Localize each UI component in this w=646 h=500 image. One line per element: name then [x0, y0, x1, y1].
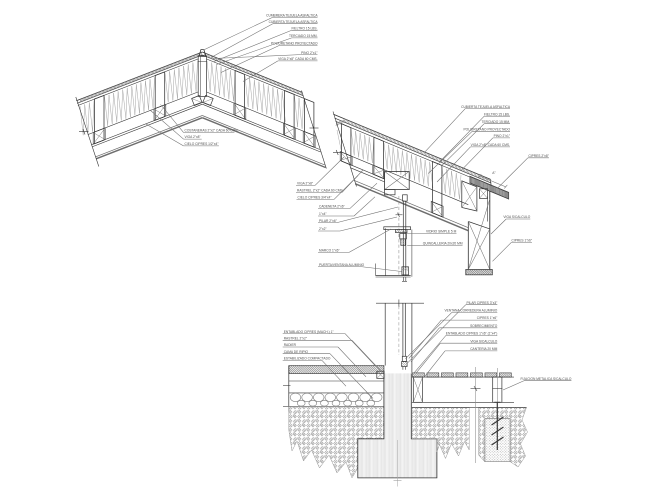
svg-text:PILAR 2"x6": PILAR 2"x6" [319, 219, 338, 223]
svg-text:VIGA S/CALCULO: VIGA S/CALCULO [503, 215, 530, 219]
svg-text:FIJACION METALICA S/CALCULO: FIJACION METALICA S/CALCULO [521, 377, 572, 381]
svg-text:CUBIERTA TEJUELA ASFALTICA: CUBIERTA TEJUELA ASFALTICA [269, 20, 319, 24]
svg-text:COSTANERAS 2"x2" CADA 60 CMS.: COSTANERAS 2"x2" CADA 60 CMS. [185, 129, 239, 133]
svg-text:VIGA 2"x8" CADA 60 CMS.: VIGA 2"x8" CADA 60 CMS. [278, 57, 317, 61]
svg-text:PILAR CIPRES 3"x3": PILAR CIPRES 3"x3" [466, 301, 498, 305]
svg-text:VIGA 2"x8": VIGA 2"x8" [185, 135, 202, 139]
svg-text:VIDRIO SIMPLE 5 M: VIDRIO SIMPLE 5 M [426, 230, 457, 234]
svg-text:POLIURETANO PROYECTADO: POLIURETANO PROYECTADO [271, 41, 318, 45]
svg-text:VIGA 2"x8" CADA 60 CMS.: VIGA 2"x8" CADA 60 CMS. [471, 143, 510, 147]
svg-text:POLIURETANO PROYECTADO: POLIURETANO PROYECTADO [464, 128, 511, 132]
svg-text:SOBRECIMIENTO: SOBRECIMIENTO [470, 324, 498, 328]
svg-text:PUERTA/VENTANA ALUMINIO: PUERTA/VENTANA ALUMINIO [319, 263, 365, 267]
svg-text:VENTANA CORREDERA ALUMINIO: VENTANA CORREDERA ALUMINIO [444, 309, 497, 313]
svg-text:QUINCALLERIA 20x20 MM: QUINCALLERIA 20x20 MM [423, 242, 463, 246]
svg-text:CIELO CIPRES 3/4"x4": CIELO CIPRES 3/4"x4" [298, 196, 333, 200]
svg-text:CIELO CIPRES 1/2"x4": CIELO CIPRES 1/2"x4" [185, 142, 220, 146]
svg-text:CUMBRERA TEJUELA ASFALTICA: CUMBRERA TEJUELA ASFALTICA [266, 13, 318, 17]
svg-text:PINO 2"x1": PINO 2"x1" [301, 51, 318, 55]
svg-text:FIELTRO 15 LBS.: FIELTRO 15 LBS. [292, 26, 318, 30]
svg-text:CIPRES 1"x6": CIPRES 1"x6" [511, 239, 532, 243]
svg-text:CUBIERTA TEJUELA ASFALTICA: CUBIERTA TEJUELA ASFALTICA [461, 105, 511, 109]
svg-text:ENTABLADO CIPRES (MACH.) 1": ENTABLADO CIPRES (MACH.) 1" [284, 330, 335, 334]
svg-text:RASTREL 2"x2": RASTREL 2"x2" [284, 336, 308, 340]
svg-text:ESTABILIZADO COMPACTADO: ESTABILIZADO COMPACTADO [284, 357, 331, 361]
svg-text:CIPRES 2"x8": CIPRES 2"x8" [528, 154, 549, 158]
svg-text:TERCIADO 15 MM.: TERCIADO 15 MM. [481, 120, 510, 124]
svg-text:2"x2": 2"x2" [319, 227, 327, 231]
svg-text:CIPRES 1"x6": CIPRES 1"x6" [477, 316, 498, 320]
svg-text:MARCO 1"x6": MARCO 1"x6" [319, 249, 340, 253]
svg-text:FIELTRO 15 LBS.: FIELTRO 15 LBS. [484, 112, 510, 116]
svg-text:RASTREL 2"x2" CADA 60 CMS.: RASTREL 2"x2" CADA 60 CMS. [297, 189, 344, 193]
svg-text:ENTABLADO CIPRES 1"x6" (1"x4"): ENTABLADO CIPRES 1"x6" (1"x4") [446, 332, 498, 336]
svg-text:CANTERIA 20 MM: CANTERIA 20 MM [470, 347, 497, 351]
svg-text:VIGA 2"x8": VIGA 2"x8" [297, 182, 314, 186]
svg-text:RADIER: RADIER [284, 343, 297, 347]
svg-text:VIGA S/CALCULO: VIGA S/CALCULO [470, 339, 497, 343]
svg-text:1"x4": 1"x4" [319, 212, 327, 216]
svg-text:PINO 2"x1": PINO 2"x1" [494, 134, 511, 138]
svg-text:CADENETA 2"x6": CADENETA 2"x6" [319, 205, 346, 209]
svg-text:TERCIADO 15 MM.: TERCIADO 15 MM. [289, 34, 318, 38]
svg-text:CAMA DE RIPIO: CAMA DE RIPIO [284, 350, 309, 354]
